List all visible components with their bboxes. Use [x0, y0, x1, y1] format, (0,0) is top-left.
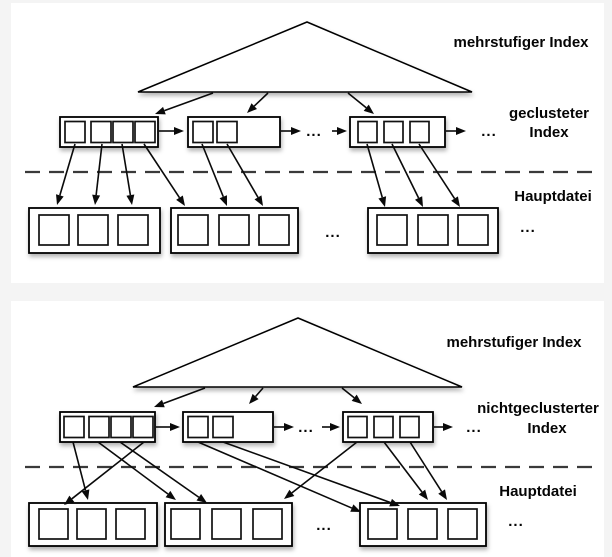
ellipsis-file-row-end: ... — [508, 513, 524, 530]
ellipsis-file-row: ... — [325, 224, 341, 241]
index-cell — [111, 417, 131, 438]
file-cell — [253, 509, 282, 539]
index-cell — [135, 122, 155, 143]
index-block-2 — [188, 117, 280, 147]
ellipsis-index-row: ... — [298, 419, 314, 436]
index-cell — [91, 122, 111, 143]
index-cell — [188, 417, 208, 438]
file-cell — [259, 215, 289, 245]
index-block-2 — [183, 412, 273, 442]
mid-label-line2: Index — [529, 124, 569, 141]
file-cell — [171, 509, 200, 539]
file-cell — [368, 509, 397, 539]
file-block-2 — [165, 503, 292, 546]
file-block-3 — [360, 503, 486, 546]
file-cell — [178, 215, 208, 245]
file-cell — [377, 215, 407, 245]
mid-label-line1: nichtgeclusterter — [477, 400, 599, 417]
index-cell — [410, 122, 429, 143]
mid-label-line1: geclusteter — [509, 105, 589, 122]
index-block-3 — [343, 412, 433, 442]
index-cell — [213, 417, 233, 438]
top-label: mehrstufiger Index — [453, 34, 589, 51]
file-cell — [418, 215, 448, 245]
index-cell — [374, 417, 393, 438]
file-cell — [219, 215, 249, 245]
file-cell — [78, 215, 108, 245]
file-block-2 — [171, 208, 298, 253]
ellipsis-file-row-end: ... — [520, 219, 536, 236]
file-cell — [458, 215, 488, 245]
file-cell — [118, 215, 148, 245]
index-block-3 — [350, 117, 445, 147]
file-cell — [116, 509, 145, 539]
top-label: mehrstufiger Index — [446, 334, 582, 351]
file-cell — [408, 509, 437, 539]
ellipsis-index-row: ... — [306, 123, 322, 140]
index-cell — [64, 417, 84, 438]
ellipsis-index-row-end: ... — [481, 123, 497, 140]
mid-label-line2: Index — [527, 420, 567, 437]
file-cell — [39, 215, 69, 245]
index-cell — [65, 122, 85, 143]
index-cell — [193, 122, 213, 143]
bottom-label: Hauptdatei — [499, 483, 577, 500]
index-cell — [133, 417, 153, 438]
index-cell — [113, 122, 133, 143]
index-cell — [348, 417, 367, 438]
bottom-label: Hauptdatei — [514, 188, 592, 205]
index-block-1 — [60, 412, 155, 442]
index-cell — [400, 417, 419, 438]
file-cell — [448, 509, 477, 539]
index-cell — [217, 122, 237, 143]
file-block-1 — [29, 208, 160, 253]
index-block-1 — [60, 117, 158, 147]
index-cell — [89, 417, 109, 438]
index-cell — [358, 122, 377, 143]
index-cell — [384, 122, 403, 143]
file-cell — [77, 509, 106, 539]
diagram-stage: mehrstufiger Index ... ... geclusteter I… — [0, 0, 612, 557]
file-block-3 — [368, 208, 498, 253]
ellipsis-index-row-end: ... — [466, 419, 482, 436]
index-structures-diagram: mehrstufiger Index ... ... geclusteter I… — [0, 0, 612, 557]
file-cell — [212, 509, 241, 539]
ellipsis-file-row: ... — [316, 517, 332, 534]
file-block-1 — [29, 503, 157, 546]
file-cell — [39, 509, 68, 539]
